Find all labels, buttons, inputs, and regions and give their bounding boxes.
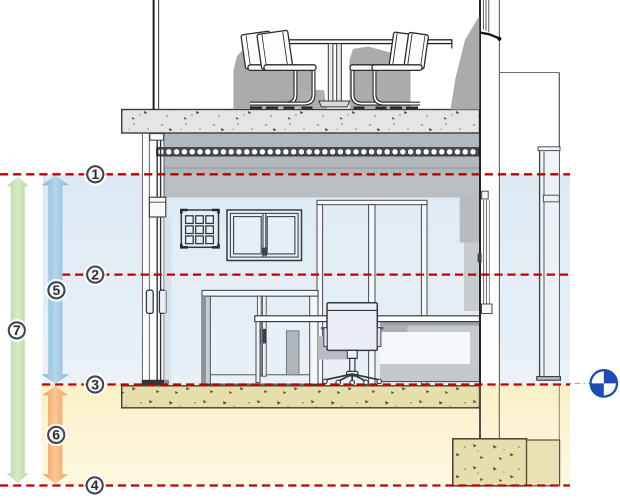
svg-text:3: 3 xyxy=(91,376,99,392)
svg-text:6: 6 xyxy=(52,427,60,443)
svg-text:7: 7 xyxy=(13,322,21,338)
svg-text:5: 5 xyxy=(53,282,61,298)
svg-text:1: 1 xyxy=(91,166,99,182)
svg-text:2: 2 xyxy=(91,266,99,282)
svg-text:4: 4 xyxy=(91,477,99,493)
